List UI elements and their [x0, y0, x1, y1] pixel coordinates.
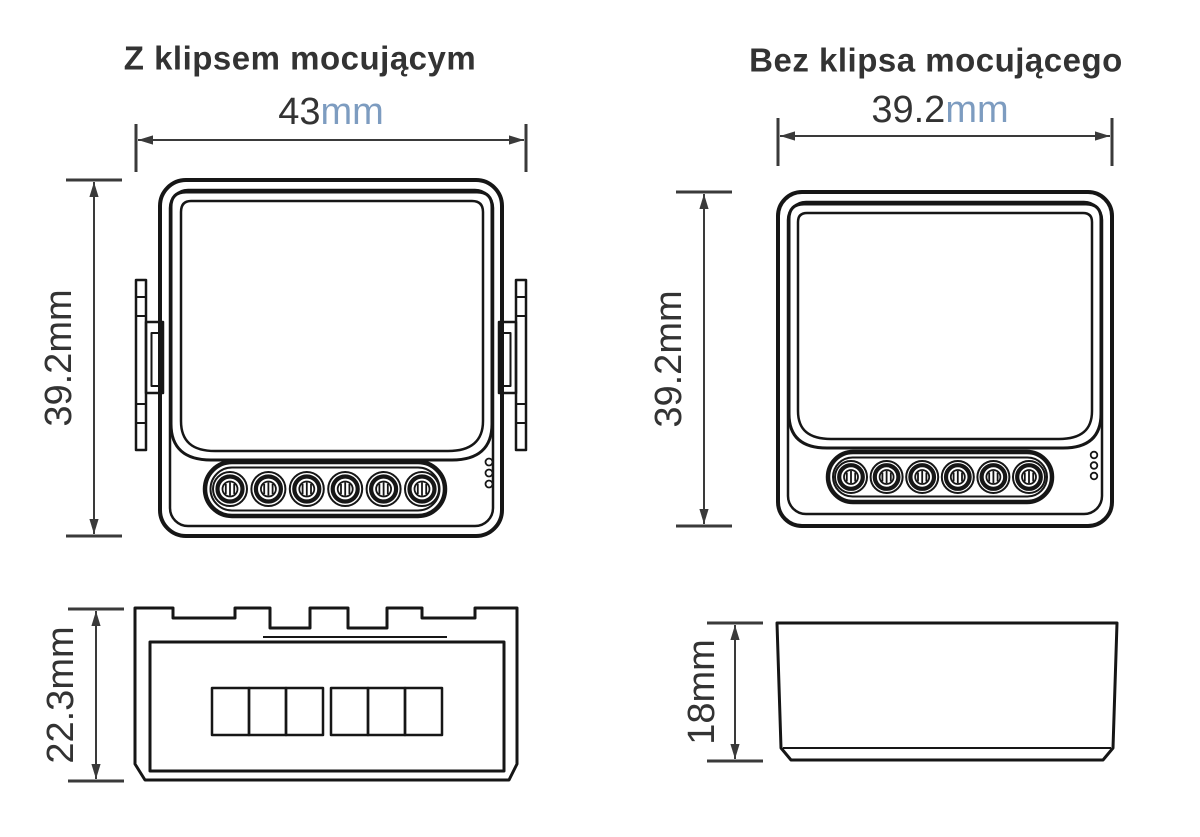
right-width-dimension-label: 39.2mm	[871, 89, 1008, 131]
dimension-unit: mm	[40, 626, 82, 689]
left-depth-dimension-label: 22.3mm	[40, 626, 82, 763]
dimension-value: 22.3	[40, 690, 82, 764]
led-dot	[486, 459, 493, 466]
clip-plate	[516, 280, 526, 450]
dimension-arrow	[730, 744, 739, 759]
dimension-value: 39.2	[648, 354, 690, 428]
technical-drawing-page: Z klipsem mocującym Bez klipsa mocująceg…	[0, 0, 1200, 837]
dimension-arrow	[89, 182, 98, 197]
left-width-dimension: 43mm	[136, 91, 526, 172]
led-dot	[1091, 452, 1098, 459]
dimension-arrow	[730, 625, 739, 640]
left-width-dimension-label: 43mm	[278, 91, 384, 133]
right-depth-dimension-label: 18mm	[681, 639, 723, 745]
dimension-value: 43	[278, 91, 320, 133]
left-height-dimension: 39.2mm	[38, 180, 122, 536]
led-dot	[486, 481, 493, 488]
dimension-value: 18	[681, 703, 723, 745]
dimension-unit: mm	[945, 89, 1008, 131]
led-dot	[1091, 462, 1098, 469]
dimension-arrow	[509, 135, 524, 144]
dimension-arrow	[1095, 131, 1110, 140]
right-section-title: Bez klipsa mocującego	[749, 42, 1123, 79]
side-view-without-clip	[777, 623, 1117, 760]
dimension-arrow	[780, 131, 795, 140]
left-height-dimension-label: 39.2mm	[38, 289, 80, 426]
cover-panel-outer	[171, 192, 492, 460]
dimension-unit: mm	[38, 289, 80, 352]
side-view-with-clip	[135, 608, 517, 780]
dimension-unit: mm	[320, 91, 383, 133]
right-height-dimension-label: 39.2mm	[648, 290, 690, 427]
dimension-value: 39.2	[38, 353, 80, 427]
led-indicators	[1091, 452, 1098, 480]
terminal-block	[828, 452, 1052, 502]
dimension-arrow	[91, 611, 100, 626]
right-width-dimension: 39.2mm	[778, 89, 1112, 166]
left-depth-dimension: 22.3mm	[40, 609, 124, 781]
drawing-svg: Z klipsem mocującym Bez klipsa mocująceg…	[0, 0, 1200, 837]
terminal-block	[205, 462, 445, 516]
right-depth-dimension: 18mm	[681, 623, 763, 761]
led-dot	[486, 470, 493, 477]
led-dot	[1091, 473, 1098, 480]
dimension-arrow	[91, 764, 100, 779]
dimension-value: 39.2	[871, 89, 945, 131]
dimension-unit: mm	[648, 290, 690, 353]
dimension-arrow	[699, 194, 708, 209]
clip-plate	[136, 280, 146, 450]
right-height-dimension: 39.2mm	[648, 192, 732, 526]
left-section-title: Z klipsem mocującym	[124, 40, 476, 77]
cover-panel-outer	[789, 204, 1101, 448]
front-view-without-clip	[778, 192, 1112, 526]
mounting-clip-right-plate	[516, 280, 526, 450]
dimension-unit: mm	[681, 639, 723, 702]
side-outline-plain	[777, 623, 1117, 760]
led-indicators	[486, 459, 493, 488]
front-view-with-clip	[136, 180, 526, 536]
side-body-outline	[150, 642, 504, 771]
dimension-arrow	[138, 135, 153, 144]
dimension-arrow	[89, 519, 98, 534]
dimension-arrow	[699, 509, 708, 524]
mounting-clip-left-plate	[136, 280, 146, 450]
